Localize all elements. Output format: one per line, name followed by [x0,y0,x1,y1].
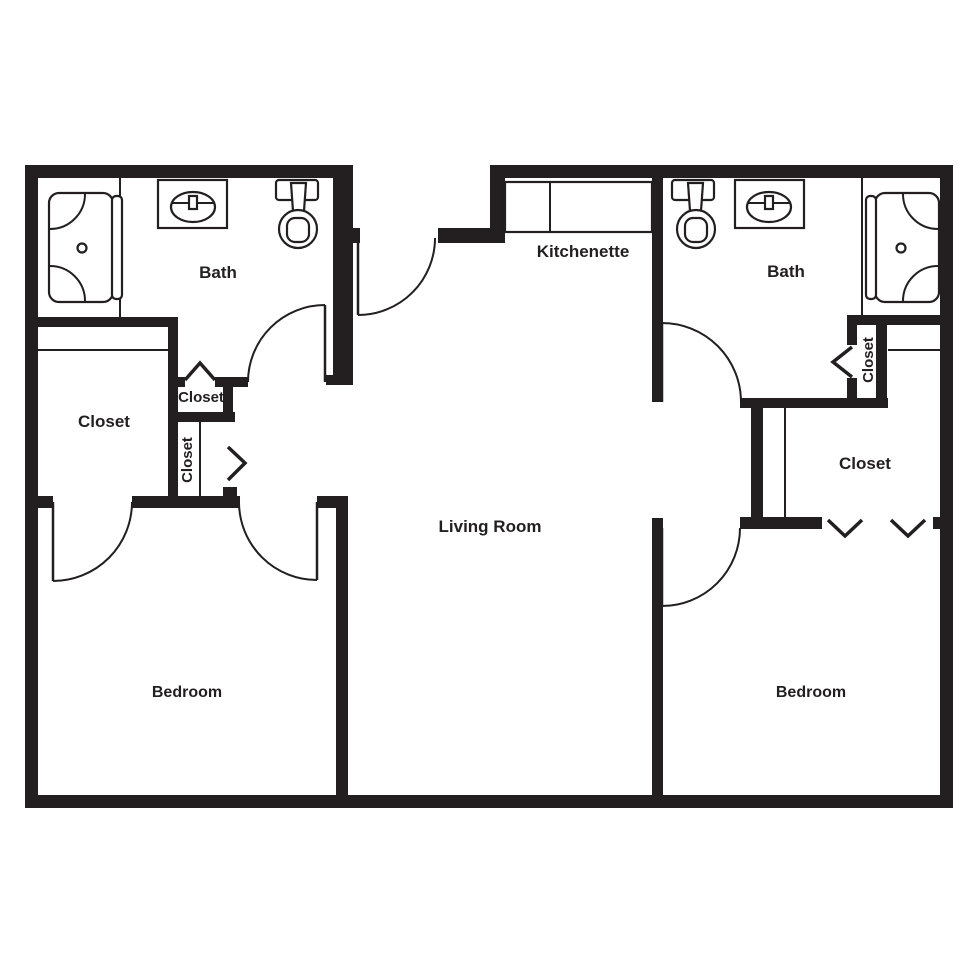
bath-right-door-arc [662,323,741,402]
toilet-right-neck [688,183,703,211]
toilet-left-seat [287,218,309,242]
room-label-living-room: Living Room [439,517,542,536]
wall-closet-upper-bottom [177,412,235,422]
bathtub-right [866,193,939,302]
sink-right-faucet [765,196,773,209]
sink-left-faucet [189,196,197,209]
wall-closet-right-left [751,398,763,528]
wall-bedroom-left-mid [132,496,240,508]
room-label-closet-right-small: Closet [860,337,877,383]
bedroom-right-door-arc [662,528,740,606]
bathtub-left [49,193,122,302]
wall-entry-vestibule [333,165,353,385]
toilet-right-seat [685,218,707,242]
walls [25,165,953,808]
bathtub-right-drain [897,244,906,253]
wall-small-closet-right-left-upper [847,325,857,345]
wall-bottom [25,795,953,808]
wall-top-left [25,165,353,178]
closet-left-lower-door-chevron [228,447,245,480]
room-label-bedroom-right: Bedroom [776,684,846,701]
wall-left [25,165,38,808]
wall-bedroom-left-jamb [38,496,53,508]
bedroom-left-closet-door-arc [53,502,132,581]
room-label-bath-left: Bath [199,263,237,282]
room-label-closet-right-large: Closet [839,454,891,473]
room-label-closet-left-large: Closet [78,412,130,431]
bath-left-door-arc [248,305,325,382]
wall-top-right [490,165,953,178]
sink-right [735,180,804,228]
floor-plan: Bath Kitchenette Bath Closet Closet Clos… [0,0,980,980]
wall-small-closet-right-left-lower [847,378,857,400]
bathtub-left-drain [78,244,87,253]
wall-bathdoor-jamb-left [326,375,353,385]
kitchenette-counter [505,182,652,232]
wall-livingroom-left [336,496,348,795]
kitchenette-counter-outline [505,182,652,232]
toilet-left [276,180,318,248]
sink-left [158,180,227,228]
wall-closet-left-divider [168,317,178,507]
wall-small-closet-right-top [847,315,940,325]
room-label-bath-right: Bath [767,262,805,281]
closet-right-small-door-chevron [833,347,852,377]
wall-right [940,165,953,808]
entry-door-arc [358,238,435,315]
room-label-bedroom-left: Bedroom [152,684,222,701]
wall-closet-right-bottom [740,517,822,529]
room-label-closet-left-upper: Closet [178,389,224,406]
wall-closet-right-stub [933,517,940,529]
wall-small-closet-right-right [876,325,887,400]
closet-right-door-chevron-1 [828,520,862,536]
room-label-kitchenette: Kitchenette [537,242,630,261]
bathtub-right-ledge [866,196,876,299]
wall-entry-vertical [490,165,505,243]
floor-plan-page: Bath Kitchenette Bath Closet Closet Clos… [0,0,980,980]
closet-left-upper-door-chevron [185,363,215,380]
bedroom-left-door-arc [239,502,317,580]
toilet-right [672,180,715,248]
wall-closet-upper-stub-left [168,377,185,387]
room-label-closet-left-lower: Closet [179,437,196,483]
bathtub-left-ledge [112,196,122,299]
wall-entry-jamb-left [333,228,360,243]
wall-bath-left-south [38,317,175,327]
toilet-left-neck [291,183,306,211]
closet-right-door-chevron-2 [891,520,925,536]
